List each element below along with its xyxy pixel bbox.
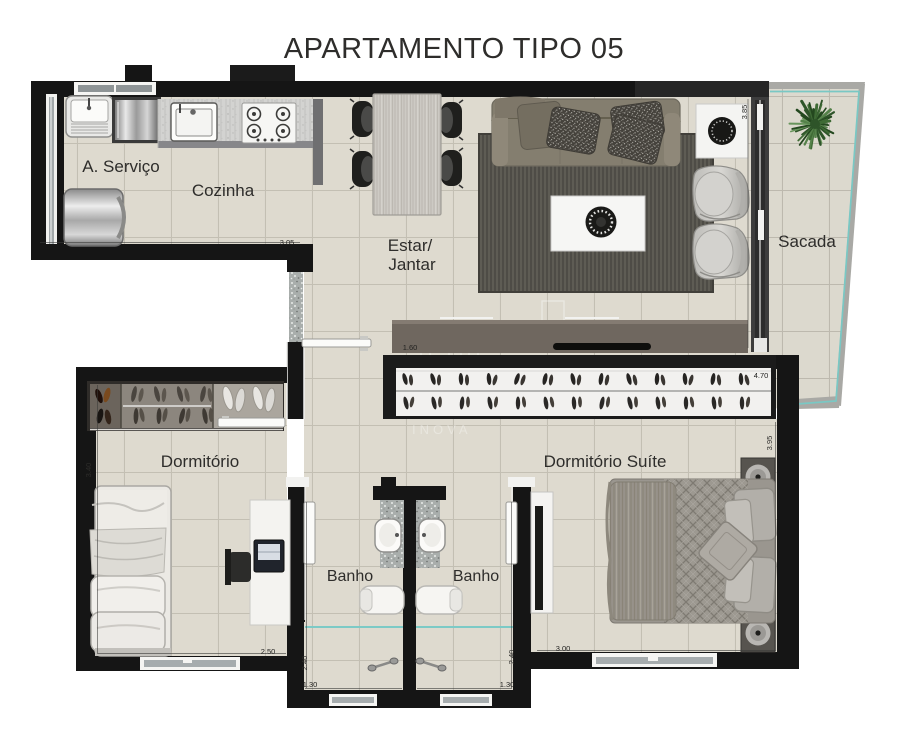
svg-text:1.60: 1.60: [403, 343, 418, 352]
svg-text:A. Serviço: A. Serviço: [82, 157, 159, 176]
svg-text:Jantar: Jantar: [388, 255, 436, 274]
svg-text:Cozinha: Cozinha: [192, 181, 255, 200]
svg-text:APARTAMENTO TIPO 05: APARTAMENTO TIPO 05: [284, 33, 624, 65]
svg-text:Sacada: Sacada: [778, 232, 836, 251]
svg-text:2.50: 2.50: [261, 647, 276, 656]
svg-text:INOVA: INOVA: [412, 422, 472, 437]
svg-text:2.40: 2.40: [300, 656, 309, 671]
svg-text:3.40: 3.40: [84, 463, 93, 478]
svg-text:1.30: 1.30: [303, 680, 318, 689]
svg-text:1.30: 1.30: [500, 680, 515, 689]
svg-text:4.70: 4.70: [754, 371, 769, 380]
svg-text:3.95: 3.95: [765, 436, 774, 451]
svg-text:Estar/: Estar/: [388, 236, 433, 255]
svg-text:Banho: Banho: [453, 568, 499, 585]
svg-text:Dormitório: Dormitório: [161, 452, 239, 471]
svg-text:3.00: 3.00: [556, 644, 571, 653]
svg-text:Dormitório Suíte: Dormitório Suíte: [544, 452, 667, 471]
svg-text:Banho: Banho: [327, 568, 373, 585]
